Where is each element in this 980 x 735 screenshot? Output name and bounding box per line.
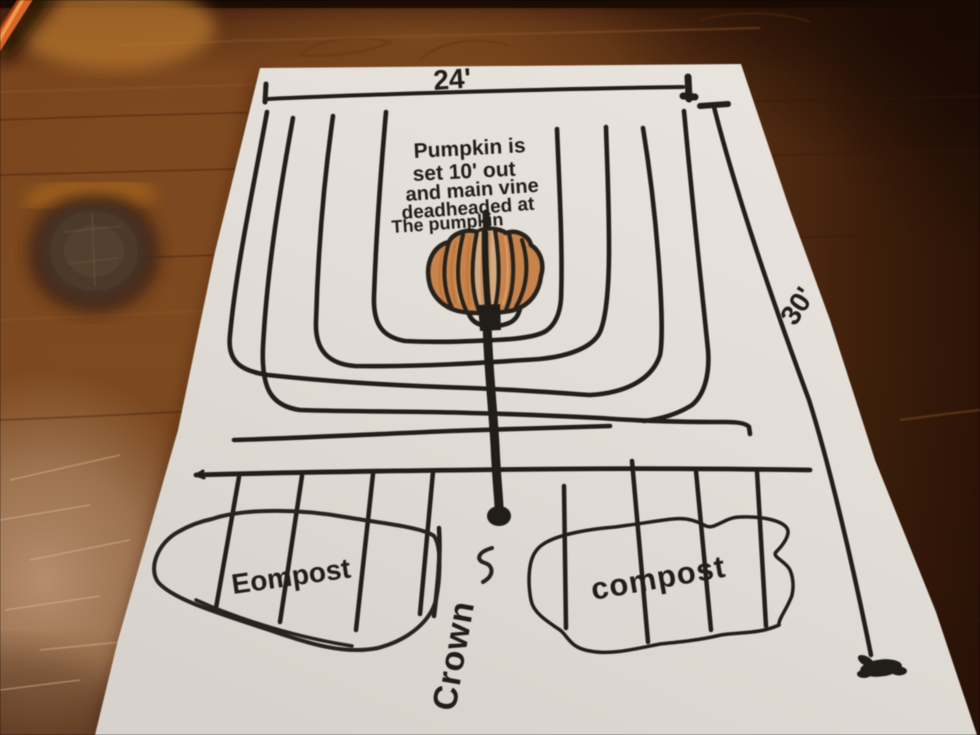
svg-text:24': 24' (432, 62, 472, 96)
